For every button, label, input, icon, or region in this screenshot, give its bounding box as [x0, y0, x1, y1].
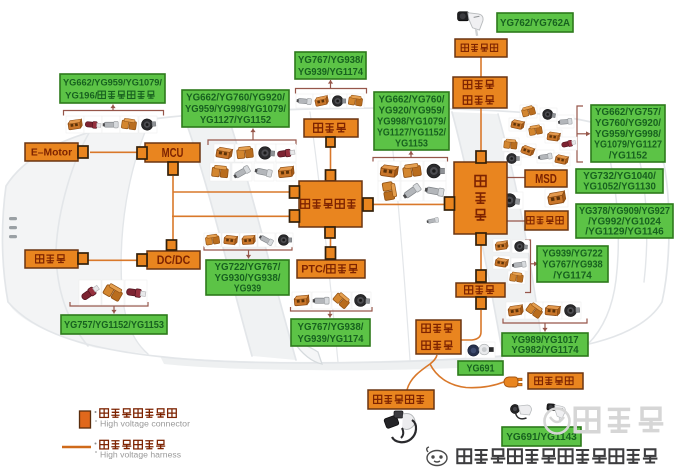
svg-text:YG939/YG722: YG939/YG722 — [542, 248, 603, 259]
svg-text:YG767/YG938/: YG767/YG938/ — [298, 322, 364, 333]
svg-text:YG767/YG938/: YG767/YG938/ — [298, 55, 363, 66]
svg-text:YG1052/YG1130: YG1052/YG1130 — [583, 182, 656, 193]
svg-text:High voltage connector: High voltage connector — [100, 420, 190, 429]
svg-text:/YG1129/YG1146: /YG1129/YG1146 — [585, 227, 664, 238]
svg-text:E–Motor: E–Motor — [31, 147, 72, 159]
svg-text:YG760/YG920/: YG760/YG920/ — [595, 118, 661, 129]
svg-text:YG939/YG1174: YG939/YG1174 — [298, 67, 364, 78]
svg-text:/YG1152: /YG1152 — [609, 150, 648, 161]
svg-text:YG930/YG938/: YG930/YG938/ — [215, 273, 281, 284]
svg-text:YG662/YG760/: YG662/YG760/ — [379, 94, 445, 105]
svg-text:YG982/YG1174: YG982/YG1174 — [511, 345, 579, 356]
svg-text:YG998/YG1079/: YG998/YG1079/ — [377, 116, 446, 127]
svg-text:YG762/YG762A: YG762/YG762A — [500, 17, 570, 29]
svg-text:YG732/YG1040/: YG732/YG1040/ — [583, 171, 656, 182]
svg-text:/YG1174: /YG1174 — [553, 270, 592, 281]
svg-text:YG939/YG1174: YG939/YG1174 — [298, 334, 364, 345]
svg-text:DC/DC: DC/DC — [157, 253, 191, 267]
svg-text:YG920/YG959/: YG920/YG959/ — [379, 105, 445, 116]
svg-text:YG662/YG760/YG920/: YG662/YG760/YG920/ — [186, 93, 285, 104]
svg-text:YG662/YG757/: YG662/YG757/ — [595, 107, 661, 118]
svg-text:YG757/YG1152/YG1153: YG757/YG1152/YG1153 — [64, 320, 164, 331]
svg-text:YG1127/YG1152/: YG1127/YG1152/ — [377, 127, 446, 138]
svg-text:MCU: MCU — [162, 145, 184, 160]
svg-text:YG959/YG998/: YG959/YG998/ — [595, 129, 661, 140]
svg-text:MSD: MSD — [535, 171, 557, 186]
svg-text:PTC/: PTC/ — [301, 264, 326, 276]
svg-text:YG691/YG1143: YG691/YG1143 — [506, 431, 577, 443]
svg-text:YG691: YG691 — [467, 363, 495, 374]
svg-text:High voltage harness: High voltage harness — [100, 451, 181, 460]
svg-text:YG767/YG938: YG767/YG938 — [542, 259, 603, 270]
svg-text:YG722/YG767/: YG722/YG767/ — [215, 262, 281, 273]
svg-text:YG959/YG998/YG1079/: YG959/YG998/YG1079/ — [185, 104, 286, 115]
svg-text:YG1127/YG1152: YG1127/YG1152 — [200, 115, 272, 126]
svg-text:YG1153: YG1153 — [395, 138, 428, 149]
svg-text:YG662/YG959/YG1079/: YG662/YG959/YG1079/ — [63, 77, 162, 88]
svg-text:YG939: YG939 — [234, 284, 262, 295]
svg-text:YG1079/YG1127: YG1079/YG1127 — [594, 140, 662, 151]
svg-text:YG196/: YG196/ — [65, 90, 98, 101]
